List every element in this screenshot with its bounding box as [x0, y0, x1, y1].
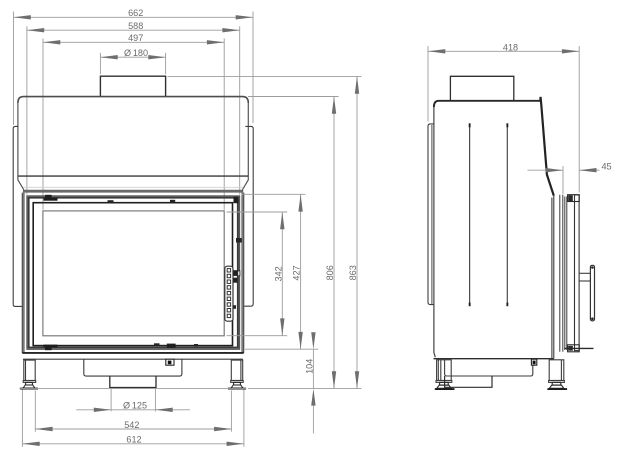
svg-text:863: 863 — [348, 265, 358, 280]
svg-text:104: 104 — [304, 359, 314, 374]
svg-text:Ø 125: Ø 125 — [123, 401, 147, 411]
svg-text:806: 806 — [325, 265, 335, 280]
svg-text:662: 662 — [128, 8, 143, 18]
svg-text:Ø 180: Ø 180 — [124, 48, 148, 58]
svg-text:342: 342 — [273, 266, 283, 281]
svg-text:588: 588 — [128, 21, 143, 31]
svg-text:45: 45 — [601, 161, 611, 171]
svg-text:497: 497 — [128, 33, 143, 43]
svg-text:542: 542 — [124, 420, 139, 430]
svg-text:418: 418 — [503, 42, 518, 52]
svg-text:427: 427 — [292, 265, 302, 280]
svg-text:612: 612 — [126, 435, 141, 445]
